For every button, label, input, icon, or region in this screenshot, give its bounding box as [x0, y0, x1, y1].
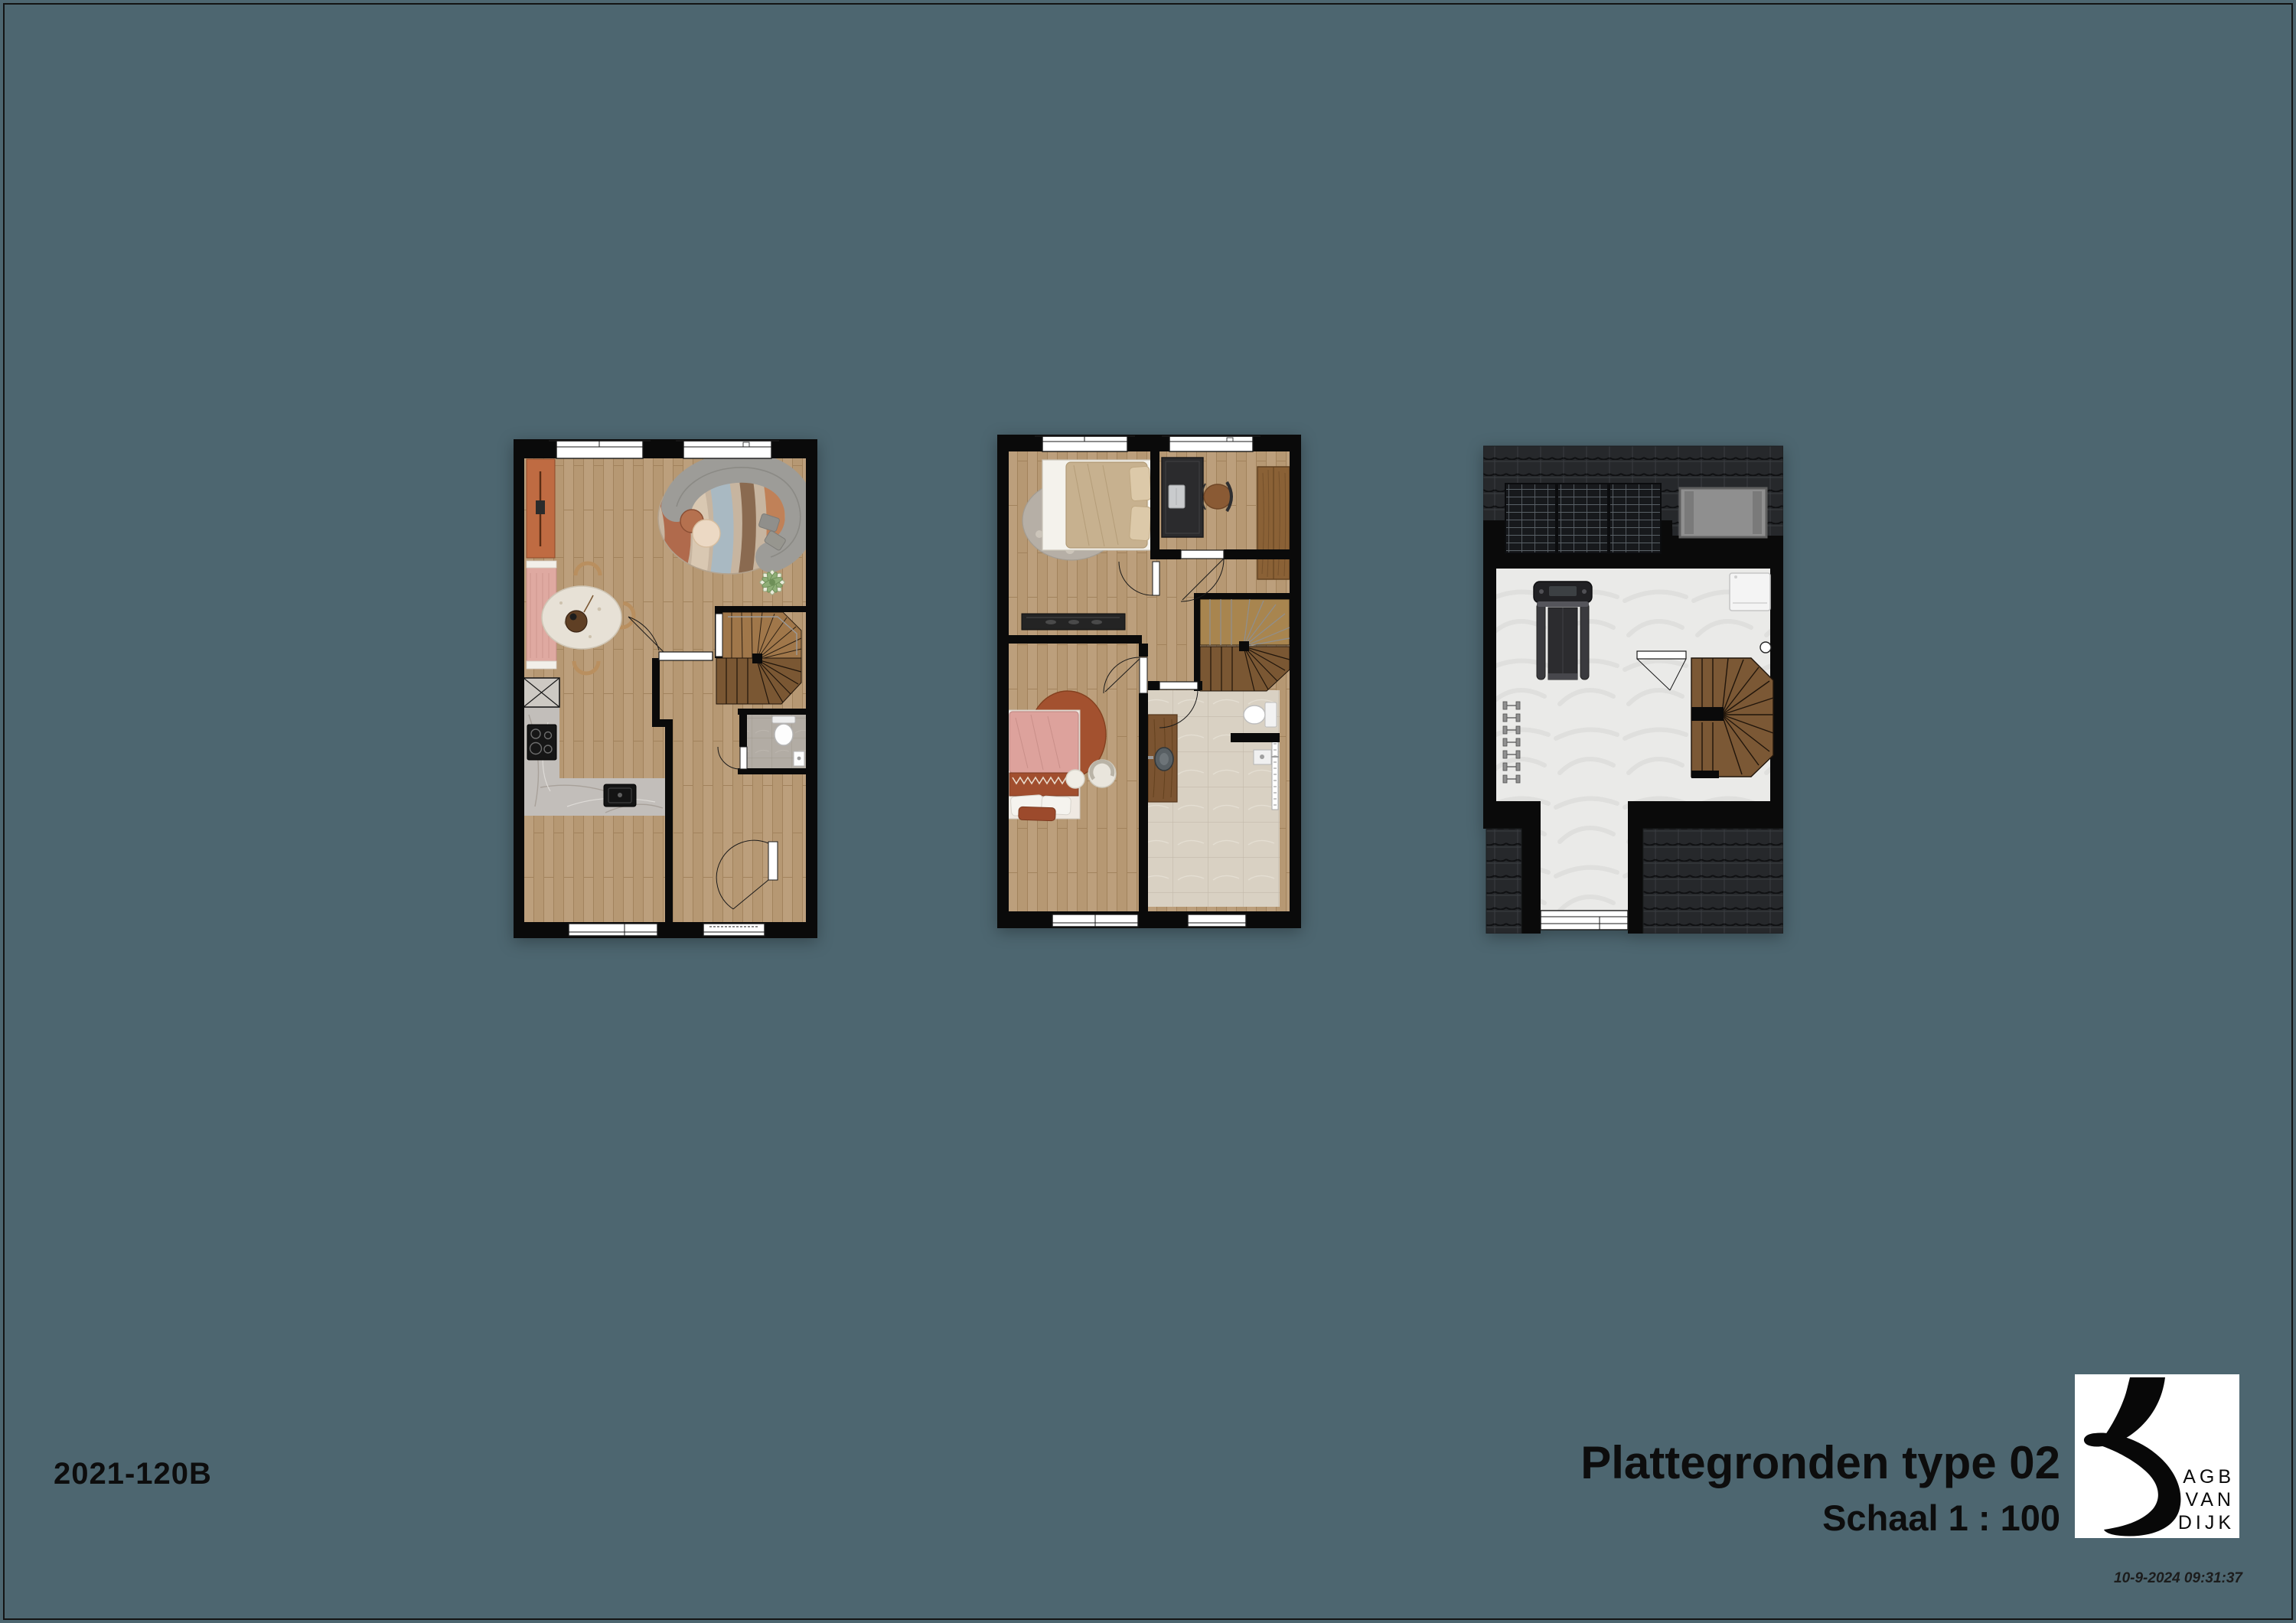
floor-plan-ground-floor	[514, 439, 817, 938]
toilet-room	[747, 715, 806, 768]
plant	[760, 570, 784, 595]
window-top-right	[676, 441, 779, 458]
logo-line-1: AGB	[2183, 1468, 2235, 1487]
washing-machine	[1730, 573, 1770, 611]
window2-top-left	[1035, 436, 1135, 451]
roof-bottom-right	[1643, 829, 1783, 934]
cooktop	[527, 725, 556, 760]
bathroom	[1148, 690, 1280, 907]
window2-bottom-right	[1188, 914, 1246, 927]
agb-van-dijk-logo: AGB VAN DIJK	[2075, 1374, 2239, 1538]
drawing-number: 2021-120B	[54, 1457, 212, 1491]
solar-panels	[1505, 484, 1661, 553]
window2-top-right	[1162, 436, 1261, 451]
floor-plan-attic	[1483, 444, 1783, 934]
single-bed	[1008, 710, 1080, 821]
spiral-staircase	[716, 612, 801, 704]
kitchen-sink	[604, 784, 636, 807]
sheet-scale: Schaal 1 : 100	[1822, 1500, 2060, 1536]
print-timestamp: 10-9-2024 09:31:37	[2114, 1570, 2242, 1587]
entrance-door-bottom	[703, 924, 765, 936]
roof-window	[1680, 488, 1766, 537]
window2-bottom-left	[1052, 914, 1138, 927]
vent	[1760, 642, 1771, 653]
plan-sheet: { "page": { "background_color": "#4d6670…	[0, 0, 2296, 1623]
coffee-table-cream	[693, 520, 720, 547]
double-bed	[1042, 460, 1153, 550]
logo-line-2: VAN	[2185, 1491, 2235, 1510]
laptop	[1169, 485, 1185, 508]
wardrobe	[1257, 467, 1290, 579]
armchair	[1088, 760, 1116, 787]
dining-table	[542, 586, 621, 649]
logo-line-3: DIJK	[2178, 1514, 2235, 1533]
kitchen-tall-cabinet	[527, 459, 555, 558]
treadmill	[1534, 582, 1592, 680]
attic-corridor-floor	[1541, 801, 1628, 911]
window-bottom-left	[569, 924, 657, 936]
sheet-title: Plattegronden type 02	[1580, 1440, 2060, 1486]
window-top-left	[549, 441, 651, 458]
pouf	[1066, 770, 1084, 788]
spiral-staircase-2	[1200, 599, 1290, 691]
appliance-box	[523, 678, 559, 707]
toilet	[775, 724, 793, 745]
attic-bottom-window	[1541, 911, 1628, 930]
spiral-staircase-3	[1691, 658, 1773, 778]
floor-plan-first-floor	[997, 435, 1301, 928]
roof-bottom-left	[1486, 829, 1521, 934]
